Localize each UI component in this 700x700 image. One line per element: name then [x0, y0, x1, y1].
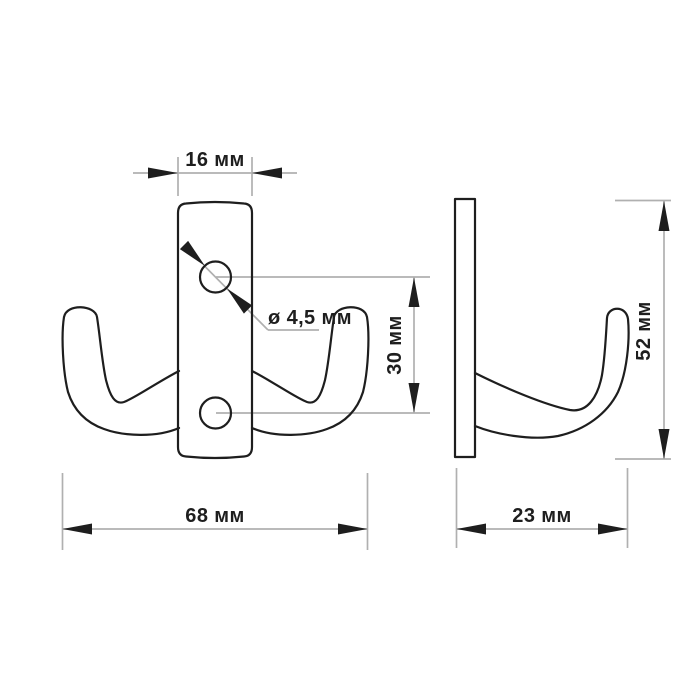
arrow-16mm-left	[148, 168, 178, 179]
technical-drawing-canvas: 16 мм ø 4,5 мм 30 мм 68 мм 52 мм 23 мм	[0, 0, 700, 700]
side-plate	[455, 199, 475, 457]
arrow-52mm-top	[659, 201, 670, 231]
label-depth: 23 мм	[512, 505, 571, 527]
front-plate	[178, 202, 252, 458]
arrow-23mm-right	[598, 524, 628, 535]
label-total-width: 68 мм	[185, 505, 244, 527]
dimension-labels: 16 мм ø 4,5 мм 30 мм 68 мм 52 мм 23 мм	[185, 149, 655, 527]
arrow-30mm-top	[409, 278, 420, 308]
arrow-68mm-left	[63, 524, 93, 535]
label-plate-width: 16 мм	[185, 149, 244, 171]
hook-drawing: 16 мм ø 4,5 мм 30 мм 68 мм 52 мм 23 мм	[0, 0, 700, 700]
front-view	[63, 202, 369, 458]
label-hole-diameter: ø 4,5 мм	[268, 307, 352, 329]
arrow-68mm-right	[338, 524, 368, 535]
arrow-30mm-bottom	[409, 383, 420, 413]
arrow-23mm-left	[457, 524, 487, 535]
side-hook	[475, 309, 629, 438]
label-height: 52 мм	[633, 301, 655, 360]
arrow-16mm-right	[252, 168, 282, 179]
dimension-lines	[63, 157, 672, 550]
label-hole-spacing: 30 мм	[384, 315, 406, 374]
arrow-hole-upper	[180, 241, 205, 266]
arrowheads	[63, 168, 670, 535]
arrow-52mm-bottom	[659, 429, 670, 459]
side-view	[455, 199, 629, 457]
front-left-hook	[63, 307, 179, 435]
